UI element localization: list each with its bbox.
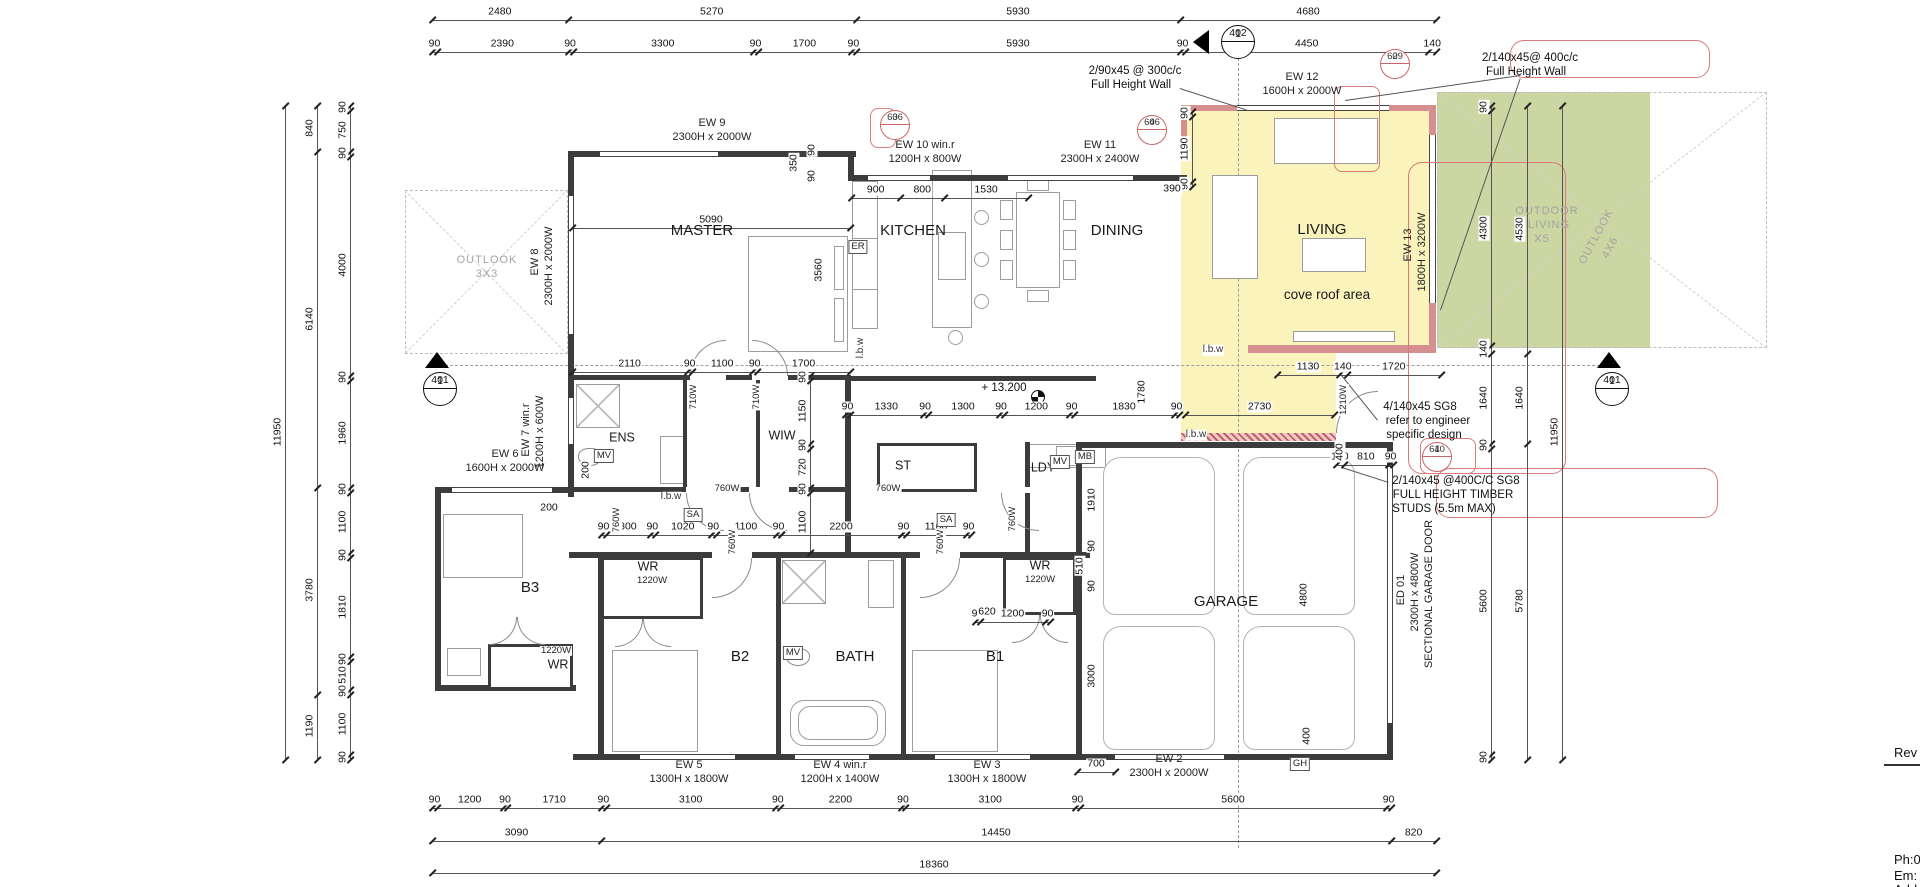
- door-width-label: 760W: [714, 484, 741, 494]
- car: [1103, 457, 1215, 615]
- dim-label-single: 1780: [1136, 379, 1147, 404]
- door-width-label: 760W: [875, 484, 902, 494]
- marker-sheet: 401: [424, 373, 456, 388]
- dim-label-single: 90: [806, 169, 817, 183]
- window-ew3: EW 3: [974, 760, 1001, 772]
- dim-hall-label: 1200: [1024, 401, 1049, 412]
- door-width-label: 760W: [612, 507, 622, 534]
- level-label: + 13.200: [981, 382, 1026, 394]
- room-b2: B2: [731, 649, 749, 665]
- wall: [901, 558, 906, 754]
- window-ew6: EW 6: [492, 449, 519, 461]
- dim-right-mid-label: 1640: [1514, 385, 1525, 410]
- dim-label-single: 620: [977, 606, 997, 617]
- chair: [447, 648, 481, 676]
- b3-bed: [443, 514, 523, 578]
- window-ew8-size: 2300H x 2000W: [544, 227, 556, 306]
- dim-left-mid-label: 840: [304, 118, 315, 138]
- dim-label-single: 510: [1074, 556, 1085, 576]
- dim-bottom-2-label: 820: [1404, 827, 1424, 838]
- window-ew12-size: 1600H x 2000W: [1263, 86, 1342, 98]
- door-swing: [615, 619, 643, 647]
- note-engineer-a: 4/140x45 SG8: [1383, 401, 1457, 413]
- titleblock-rev-label: Rev: [1894, 745, 1917, 760]
- dim-tick: [1433, 837, 1440, 844]
- cove-roof-label: cove roof area: [1284, 288, 1370, 302]
- dim-top-1-label: 2480: [487, 6, 512, 17]
- b2-bed: [612, 650, 698, 752]
- dim-label-single: 90: [1086, 579, 1097, 593]
- dim-kitchen: [851, 198, 1028, 199]
- section-marker-401-right: 1 401: [1595, 372, 1629, 406]
- stool: [974, 294, 989, 309]
- window-ew8: [568, 196, 574, 334]
- window-ew11: [1008, 175, 1133, 181]
- room-st: ST: [895, 459, 911, 472]
- dim-bottom-2-label: 3090: [504, 827, 529, 838]
- dim-left-inner-label: 1100: [337, 510, 348, 535]
- dim-right-inner-label: 5600: [1478, 588, 1489, 613]
- dim-hall: [845, 415, 1179, 416]
- dim-right-outer: [1562, 105, 1563, 759]
- window-ew13-size: 1800H x 3200W: [1417, 213, 1429, 292]
- lounge-highlight-zone: [1181, 345, 1336, 441]
- dim-bed-b-label: 2200: [828, 521, 853, 532]
- door-width-label: 710W: [689, 384, 699, 411]
- section-arrow-401-left: [425, 352, 449, 368]
- titleblock-email: Em:: [1894, 868, 1917, 883]
- wall: [851, 376, 1096, 381]
- dim-top-2-label: 2390: [490, 38, 515, 49]
- window-ew11: EW 11: [1084, 140, 1116, 152]
- dim-bottom-1-label: 3100: [978, 794, 1003, 805]
- dim-right-mid-label: 4530: [1514, 216, 1525, 241]
- dim-living-left-label: 1190: [1179, 136, 1190, 161]
- room-living: LIVING: [1297, 222, 1346, 238]
- dim-label-single: 400: [1301, 726, 1312, 746]
- dim-master-south-label: 2110: [617, 358, 642, 369]
- dim-label-single: 400: [1334, 442, 1345, 462]
- mech-vent-box: MV: [783, 646, 803, 660]
- dim-lounge-label: 2730: [1247, 401, 1272, 412]
- dim-kitchen-label: 800: [912, 184, 932, 195]
- wall: [683, 380, 687, 488]
- door-gap: [1336, 433, 1380, 441]
- dim-top-1-label: 5270: [699, 6, 724, 17]
- ens-shower: [576, 384, 620, 428]
- dim-living-left: [1192, 111, 1193, 186]
- room-wr-2: WR: [548, 658, 569, 671]
- stool: [974, 210, 989, 225]
- dim-wiw-label: 1100: [797, 510, 808, 535]
- dim-top-2-label: 4450: [1294, 38, 1319, 49]
- dim-left-inner-label: 510: [337, 665, 348, 685]
- door-swing: [920, 558, 960, 598]
- mech-vent-box: MV: [1050, 455, 1070, 469]
- bath-vanity: [868, 560, 894, 608]
- dim-tick: [1112, 768, 1119, 775]
- outdoor-living-size: X5: [1534, 234, 1549, 246]
- dim-right-inner: [1491, 105, 1492, 759]
- dim-b1: [975, 622, 1050, 623]
- window-ew7-size: 1200H x 600W: [535, 396, 547, 469]
- ens-vanity: [660, 436, 684, 484]
- door-width-label: 1220W: [1024, 575, 1056, 585]
- bath-shower: [782, 560, 826, 604]
- dim-top-1: [432, 20, 1436, 21]
- wall: [1076, 442, 1082, 760]
- meter-box: MB: [1075, 450, 1095, 464]
- dim-left-inner-label: 4000: [337, 253, 348, 278]
- dim-bottom-1-label: 3100: [678, 794, 703, 805]
- note-stud-wall-1b: Full Height Wall: [1091, 79, 1171, 91]
- door-width-label: 1220W: [540, 646, 572, 656]
- dining-chair: [1027, 290, 1049, 302]
- window-ew9: EW 9: [699, 118, 726, 130]
- lbw-label: l.b.w: [1203, 345, 1224, 356]
- dim-label-single: 350: [788, 153, 799, 173]
- window-ew12: EW 12: [1285, 72, 1318, 84]
- pillow: [834, 246, 844, 290]
- dim-label-single: 1910: [1086, 487, 1097, 512]
- dim-bottom-3-label: 18360: [918, 859, 949, 870]
- outlook-left-size: 3X3: [476, 269, 499, 281]
- note-engineer-c: specific design: [1386, 429, 1461, 441]
- dim-top-2-label: 1700: [792, 38, 817, 49]
- smoke-alarm-box: SA: [937, 513, 956, 527]
- window-ew2: EW 2: [1156, 754, 1183, 766]
- sofa: [1212, 175, 1258, 279]
- window-ew6: [452, 487, 552, 493]
- dim-upper-label: 1720: [1381, 361, 1406, 372]
- marker-sheet: 402: [1222, 26, 1254, 41]
- dim-wiw-label: 1150: [797, 399, 808, 424]
- dim-top-1-label: 5930: [1005, 6, 1030, 17]
- marker-sheet: 610: [1423, 443, 1451, 456]
- tv-unit: [1293, 331, 1395, 342]
- dim-left-mid: [317, 105, 318, 759]
- room-bath: BATH: [836, 649, 875, 665]
- dim-hall-label: 1330: [874, 401, 899, 412]
- room-wr-1: WR: [638, 560, 659, 573]
- dim-upper-label: 1130: [1296, 361, 1321, 372]
- kitchen-sink: [938, 232, 966, 280]
- dim-label-single: 390: [1162, 183, 1182, 194]
- bath-tub-inner: [798, 706, 878, 740]
- detail-marker-3-606: 3 606: [880, 110, 910, 140]
- window-ew9-size: 2300H x 2000W: [673, 132, 752, 144]
- dim-label-single: 90: [806, 143, 817, 157]
- dining-chair: [1063, 200, 1076, 220]
- dim-label-single: 3560: [813, 257, 824, 282]
- door-swing: [517, 617, 545, 645]
- dim-left-outer: [285, 105, 286, 759]
- dim-bottom-1: [432, 808, 1391, 809]
- titleblock-phone: Ph:0: [1894, 852, 1920, 867]
- section-marker-401-left: 1 401: [423, 372, 457, 406]
- marker-sheet: 606: [881, 111, 909, 124]
- dim-right-inner-label: 1640: [1478, 385, 1489, 410]
- dim-left-inner-label: 750: [337, 121, 348, 141]
- window-ew11-size: 2300H x 2400W: [1061, 154, 1140, 166]
- door-width-label: 710W: [752, 384, 762, 411]
- dim-wiw-label: 720: [797, 458, 808, 478]
- dim-wiw: [810, 375, 811, 552]
- lbw-label: l.b.w: [1186, 430, 1207, 441]
- dining-chair: [1000, 200, 1013, 220]
- section-marker-402: 1 402: [1221, 25, 1255, 59]
- dim-left-outer-label: 11950: [272, 417, 283, 447]
- window-ew2-size: 2300H x 2000W: [1130, 768, 1209, 780]
- room-dining: DINING: [1091, 223, 1144, 239]
- dim-bed-a-label: 1020: [670, 521, 695, 532]
- extract-box: ER: [848, 240, 867, 254]
- dim-bottom-1-label: 1200: [457, 794, 482, 805]
- floor-plan-drawing: 2480527059304680902390903300901700905930…: [0, 0, 1920, 887]
- dim-right-inner-label: 4300: [1478, 215, 1489, 240]
- dim-top-1-label: 4680: [1295, 6, 1320, 17]
- pillow: [834, 298, 844, 342]
- dim-bottom-2-label: 14450: [980, 827, 1011, 838]
- dim-bottom-1-label: 1710: [542, 794, 567, 805]
- window-ew8: EW 8: [530, 249, 542, 276]
- note-stud-wall-2b: Full Height Wall: [1486, 66, 1566, 78]
- lbw-label: l.b.w: [661, 492, 682, 503]
- dining-chair: [1063, 260, 1076, 280]
- detail-marker-2-609: 2 609: [1380, 49, 1410, 79]
- door-width-label: 1220W: [636, 576, 668, 586]
- note-stud-wall-2a: 2/140x45@ 400c/c: [1482, 52, 1578, 64]
- room-wiw: WIW: [768, 429, 795, 442]
- section-arrow-402: [1193, 30, 1209, 54]
- note-engineer-b: refer to engineer: [1386, 415, 1470, 427]
- dim-kitchen-label: 1530: [973, 184, 998, 195]
- dim-lounge: [1185, 415, 1334, 416]
- window-ew5-size: 1300H x 1800W: [650, 774, 729, 786]
- room-b1: B1: [986, 649, 1004, 665]
- window-ew7: [568, 398, 574, 444]
- dim-top-2-label: 5930: [1005, 38, 1030, 49]
- window-ew10: [868, 175, 930, 181]
- dim-b1-label: 1200: [1000, 608, 1025, 619]
- window-ew3-size: 1300H x 1800W: [948, 774, 1027, 786]
- dim-tick: [1433, 869, 1440, 876]
- dim-tick: [282, 756, 289, 763]
- window-ew13: EW 13: [1403, 228, 1415, 261]
- smoke-alarm-box: SA: [684, 508, 703, 522]
- marker-sheet: 401: [1596, 373, 1628, 388]
- outlook-left-label: OUTLOOK: [457, 255, 518, 267]
- window-ew5: EW 5: [676, 760, 703, 772]
- window-ew4: EW 4 win.r: [813, 760, 866, 772]
- note-studs-a: 2/140x45 @400C/C SG8: [1392, 475, 1519, 487]
- dim-tick: [1433, 16, 1440, 23]
- outdoor-living-label-2: LIVING: [1528, 220, 1570, 232]
- dim-label-single: 200: [539, 502, 559, 513]
- dim-label-single: 4800: [1298, 582, 1309, 607]
- dim-tick: [1524, 756, 1531, 763]
- dim-bottom-3: [432, 873, 1436, 874]
- dining-chair: [1000, 230, 1013, 250]
- door-width-label: 760W: [728, 529, 738, 556]
- door-ed01-type: SECTIONAL GARAGE DOOR: [1424, 520, 1436, 668]
- car: [1243, 626, 1355, 750]
- dim-bottom-1-label: 2200: [828, 794, 853, 805]
- door-swing: [643, 619, 671, 647]
- door-swing: [712, 558, 752, 598]
- stool: [948, 330, 963, 345]
- dim-label-single: 3000: [1086, 663, 1097, 688]
- dim-bed-b: [781, 535, 901, 536]
- dim-700-label: 700: [1086, 758, 1106, 769]
- dim-master-south-label: 1100: [710, 358, 735, 369]
- dim-label-single: 200: [580, 460, 591, 480]
- marker-sheet: 606: [1138, 116, 1166, 129]
- car: [1103, 626, 1215, 750]
- note-stud-wall-1a: 2/90x45 @ 300c/c: [1089, 65, 1182, 77]
- dining-chair: [1063, 230, 1076, 250]
- door-swing: [489, 617, 517, 645]
- dim-bottom-2: [432, 841, 1436, 842]
- dim-hall-label: 1830: [1111, 401, 1136, 412]
- titleblock-address: Add: [1894, 882, 1917, 887]
- dim-right-mid-label: 5780: [1514, 588, 1525, 613]
- room-b3: B3: [521, 580, 539, 596]
- section-arrow-401-right: [1597, 352, 1621, 368]
- dining-table: [1016, 192, 1060, 288]
- dim-left-mid-label: 6140: [304, 306, 315, 331]
- wall: [776, 558, 781, 754]
- dim-hall-label: 1300: [950, 401, 975, 412]
- dim-right-outer-label: 11950: [1549, 417, 1560, 447]
- window-ew10-size: 1200H x 800W: [889, 154, 962, 166]
- window-ew4-size: 1200H x 1400W: [801, 774, 880, 786]
- wall: [435, 487, 441, 691]
- dim-tick: [314, 756, 321, 763]
- outdoor-living-label-1: OUTDOOR: [1515, 206, 1578, 218]
- dim-700: [1077, 772, 1115, 773]
- window-ew10: EW 10 win.r: [895, 140, 954, 152]
- dining-chair: [1000, 260, 1013, 280]
- master-bed: [748, 236, 848, 352]
- detail-marker-4-606: 4 606: [1137, 115, 1167, 145]
- room-garage: GARAGE: [1194, 594, 1258, 610]
- dim-bottom-1-label: 5600: [1220, 794, 1245, 805]
- dim-tick: [1559, 756, 1566, 763]
- dim-left-inner-label: 1100: [337, 712, 348, 737]
- note-studs-b: FULL HEIGHT TIMBER: [1393, 489, 1514, 501]
- b1-bed: [912, 650, 998, 752]
- dim-top-2: [432, 52, 1436, 53]
- dim-master-south-label: 1700: [791, 358, 816, 369]
- marker-sheet: 609: [1381, 50, 1409, 63]
- lbw-label: l.b.w: [856, 338, 867, 359]
- room-ens: ENS: [609, 431, 635, 444]
- detail-marker-4-610: 4 610: [1422, 442, 1452, 472]
- wall: [1081, 442, 1393, 448]
- titleblock-rule: [1884, 764, 1920, 766]
- door-width-label: 760W: [1008, 506, 1018, 533]
- dim-label-single: 90: [1086, 539, 1097, 553]
- note-studs-c: STUDS (5.5m MAX): [1392, 503, 1496, 515]
- room-kitchen: KITCHEN: [880, 223, 946, 239]
- door-ed01-size: 2300H x 4800W: [1410, 553, 1422, 632]
- dim-left-inner-label: 1810: [337, 594, 348, 619]
- dim-left-mid-label: 3780: [304, 578, 315, 603]
- dim-top-2-label: 3300: [650, 38, 675, 49]
- coffee-table: [1302, 238, 1366, 272]
- window-ew7: EW 7 win.r: [521, 403, 533, 456]
- stool: [974, 252, 989, 267]
- dim-garage-top-label: 810: [1356, 451, 1376, 462]
- door-ed01: ED 01: [1396, 575, 1408, 606]
- dim-right-mid: [1527, 105, 1528, 759]
- dim-bed-a: [601, 535, 781, 536]
- window-ew6-size: 1600H x 2000W: [466, 463, 545, 475]
- door-width-label: 760W: [936, 529, 946, 556]
- door-width-label: 1210W: [1339, 384, 1349, 416]
- dim-upper: [1277, 375, 1441, 376]
- dim-left-inner-label: 1960: [337, 421, 348, 446]
- mech-vent-box: MV: [594, 449, 614, 463]
- gas-heater-box: GH: [1290, 757, 1310, 771]
- room-master: MASTER: [671, 223, 734, 239]
- window-ew9: [600, 151, 718, 157]
- dim-kitchen-label: 900: [866, 184, 886, 195]
- dim-left-mid-label: 1190: [304, 714, 315, 739]
- room-wr-3: WR: [1030, 559, 1051, 572]
